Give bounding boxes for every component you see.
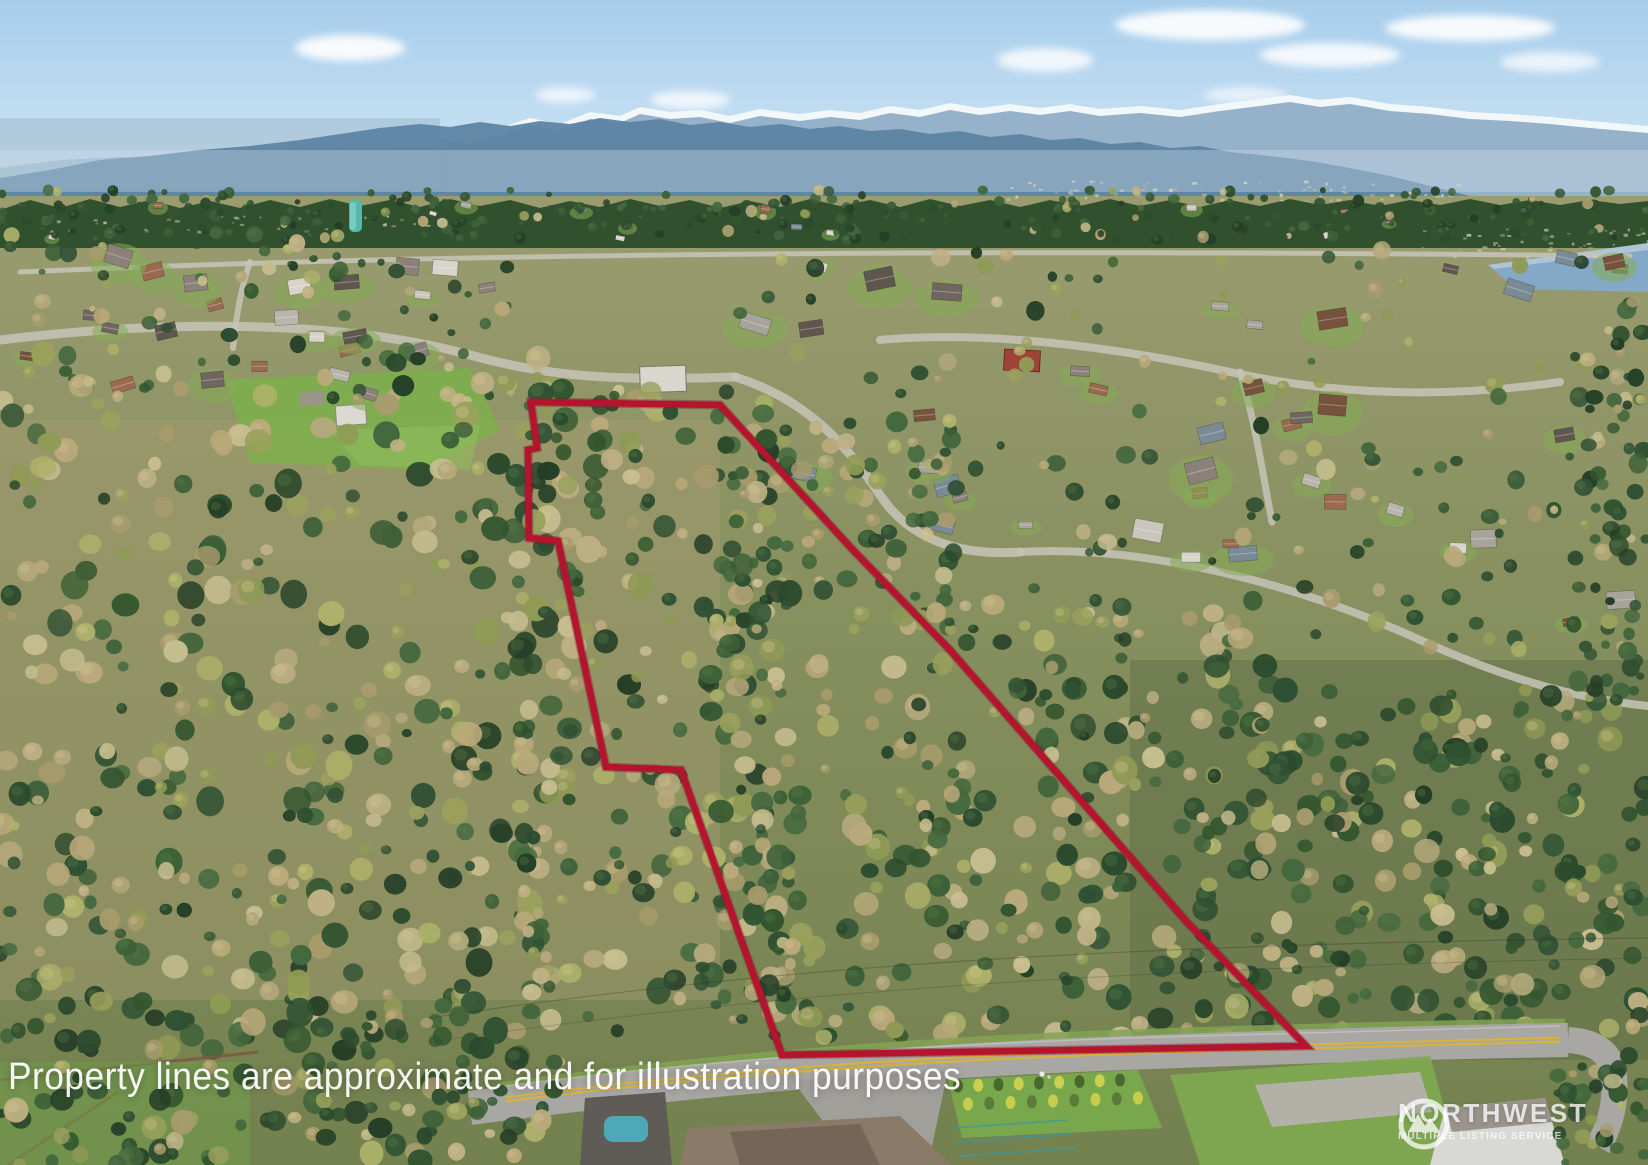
tree [241, 559, 254, 570]
tree-highlight [456, 406, 469, 418]
tree [148, 457, 161, 471]
tree [1283, 234, 1288, 239]
tree [171, 1110, 195, 1135]
tree [1314, 716, 1326, 727]
tree-highlight [639, 216, 642, 219]
tree [550, 746, 573, 765]
tree-highlight [935, 376, 939, 380]
tree-highlight [1109, 988, 1122, 1000]
tree-highlight [57, 1032, 69, 1043]
tree [1380, 708, 1396, 722]
tree [162, 955, 189, 979]
tree [1596, 479, 1608, 490]
tree-highlight [1284, 742, 1294, 751]
tree [366, 814, 382, 827]
tree [1311, 773, 1323, 786]
tree-highlight [1448, 222, 1452, 226]
tree [385, 1019, 407, 1040]
tree [1055, 917, 1071, 934]
speckle [1371, 184, 1375, 186]
tree-highlight [1570, 935, 1578, 942]
tree [558, 207, 566, 215]
tree [778, 447, 797, 464]
speckle [1070, 190, 1072, 192]
tree-highlight [673, 848, 684, 858]
tree [156, 365, 172, 382]
tree [1584, 648, 1597, 660]
tree [158, 862, 174, 880]
tree-highlight [635, 885, 646, 895]
tree [520, 700, 538, 719]
tree-highlight [1605, 522, 1614, 530]
tree-highlight [149, 190, 153, 193]
tree-highlight [1094, 275, 1099, 279]
speckle [391, 225, 396, 227]
tree-highlight [334, 992, 348, 1004]
tree-highlight [1581, 521, 1586, 526]
tree [137, 757, 161, 777]
tree-highlight [1086, 764, 1099, 775]
tree-highlight [597, 633, 609, 644]
tree-highlight [231, 1026, 243, 1037]
tree-highlight [52, 232, 56, 236]
tree [1401, 819, 1422, 837]
tree-highlight [1021, 226, 1024, 229]
tree-highlight [1209, 771, 1216, 777]
tree [1251, 860, 1269, 879]
tree [1115, 653, 1127, 664]
tree-highlight [897, 390, 903, 395]
tree-highlight [248, 229, 256, 237]
tree [785, 958, 796, 970]
tree-highlight [1153, 236, 1159, 241]
tree [295, 199, 301, 204]
tree [177, 581, 204, 609]
tree [469, 1106, 485, 1120]
tree [1446, 742, 1471, 766]
tree [937, 512, 956, 527]
tree [735, 466, 749, 479]
tree-highlight [362, 1130, 368, 1135]
tree [1504, 994, 1519, 1007]
tree [1247, 749, 1269, 768]
tree-highlight [19, 203, 22, 206]
tree [640, 646, 652, 656]
tree [327, 788, 343, 803]
tree [312, 218, 322, 226]
tree [845, 794, 867, 815]
tree [1181, 611, 1197, 626]
tree [435, 998, 452, 1014]
speckle [1572, 243, 1575, 246]
tree [1566, 233, 1573, 239]
tree-highlight [1140, 357, 1146, 362]
tree [1542, 769, 1553, 778]
tree [1031, 220, 1041, 231]
tree [127, 195, 137, 204]
tree-highlight [914, 486, 922, 493]
tree-highlight [342, 884, 348, 890]
tree [509, 551, 531, 569]
tree [1104, 722, 1128, 744]
speckle [1280, 200, 1284, 202]
tree [221, 328, 238, 342]
tree [393, 908, 411, 924]
shrub [1069, 1094, 1079, 1107]
tree [1, 403, 25, 427]
tree-highlight [1265, 222, 1271, 227]
tree [1330, 756, 1346, 773]
tree [1053, 826, 1066, 840]
tree [34, 947, 45, 957]
tree [46, 862, 69, 885]
tree-highlight [299, 866, 307, 873]
tree-highlight [592, 507, 600, 514]
tree [638, 537, 654, 552]
shrub [1054, 1076, 1064, 1089]
tree [865, 716, 879, 731]
tree-highlight [1611, 539, 1621, 548]
tree [1061, 975, 1073, 985]
tree [558, 476, 578, 495]
tree-highlight [453, 220, 458, 225]
tree-highlight [842, 791, 847, 796]
tree [245, 205, 251, 210]
tree [214, 435, 232, 455]
tree [572, 577, 582, 586]
tree [1045, 704, 1064, 720]
tree [666, 857, 678, 869]
tree-highlight [1168, 753, 1177, 761]
tree [1250, 809, 1275, 831]
tree-highlight [496, 665, 504, 672]
tree [1052, 214, 1059, 221]
tree-highlight [78, 204, 83, 208]
tree-highlight [231, 427, 243, 438]
tree-highlight [785, 940, 794, 948]
tree-highlight [1491, 804, 1499, 811]
tree-highlight [289, 1113, 296, 1119]
tree [1292, 985, 1313, 1007]
speckle [1628, 229, 1630, 232]
tree [165, 746, 189, 771]
tree [9, 480, 20, 490]
tree [1007, 369, 1022, 382]
tree-highlight [404, 1105, 411, 1111]
tree [854, 892, 879, 916]
tree-highlight [1467, 960, 1478, 970]
tree [470, 566, 496, 589]
tree [340, 1027, 356, 1040]
tree-highlight [1576, 257, 1583, 264]
tree-highlight [596, 872, 605, 880]
tree-highlight [1085, 822, 1095, 831]
tree-highlight [731, 842, 738, 848]
tree-highlight [1448, 691, 1453, 696]
tree [1235, 528, 1252, 546]
tree [106, 640, 122, 655]
tree-highlight [443, 434, 452, 442]
tree-highlight [324, 735, 330, 740]
tree-highlight [168, 1135, 177, 1143]
tree-highlight [1505, 776, 1514, 784]
tree [1526, 218, 1534, 226]
tree [409, 806, 425, 820]
speckle [1006, 198, 1010, 201]
tree [265, 494, 282, 512]
tree-highlight [469, 758, 477, 765]
tree-highlight [117, 490, 125, 497]
pedestrian-dog [1047, 1075, 1050, 1078]
tree [1629, 453, 1648, 473]
tree [966, 919, 988, 941]
tree [406, 462, 434, 487]
tree-highlight [1051, 285, 1057, 291]
tree [1519, 684, 1532, 696]
tree-highlight [390, 195, 394, 198]
tree [90, 992, 113, 1011]
tree-highlight [1091, 596, 1097, 602]
tree [321, 923, 348, 948]
tree-highlight [949, 926, 958, 934]
tree [427, 850, 440, 863]
tree [8, 856, 21, 869]
tree-highlight [346, 507, 354, 514]
tree-highlight [615, 861, 620, 866]
tree [1350, 487, 1365, 500]
speckle [1636, 234, 1640, 236]
tree [694, 465, 719, 489]
tree-highlight [1254, 1014, 1265, 1024]
tree-highlight [614, 386, 620, 391]
tree [519, 211, 529, 221]
tree [43, 185, 54, 196]
tree-highlight [900, 212, 903, 214]
tree [1298, 221, 1309, 231]
tree [136, 202, 142, 207]
tree-highlight [101, 745, 109, 752]
tree [1149, 776, 1161, 787]
tree-highlight [760, 214, 764, 217]
tree [722, 959, 736, 974]
tree [79, 535, 102, 555]
tree [1128, 721, 1145, 739]
tree-highlight [281, 217, 287, 222]
speckle [325, 228, 328, 230]
tree-highlight [1618, 1102, 1622, 1106]
speckle [1303, 189, 1306, 191]
tree-highlight [392, 627, 399, 633]
tree [1469, 617, 1484, 630]
tree [1001, 904, 1017, 917]
tree [664, 614, 676, 625]
tree [1626, 297, 1639, 308]
tree [481, 516, 509, 541]
tree-highlight [456, 661, 464, 668]
tree [235, 1119, 246, 1131]
tree-highlight [933, 820, 943, 829]
tree [30, 456, 56, 478]
tree [390, 439, 406, 451]
speckle [1305, 200, 1309, 202]
tree [456, 235, 464, 242]
tree-highlight [1105, 854, 1118, 866]
tree-highlight [473, 464, 479, 470]
shrub [973, 1079, 983, 1092]
tree-highlight [1256, 705, 1266, 714]
tree [1569, 1070, 1578, 1077]
tree [345, 734, 369, 754]
tree [336, 424, 358, 446]
tree-highlight [1411, 194, 1414, 197]
tree-highlight [459, 218, 463, 222]
tree [911, 698, 926, 712]
tree-highlight [1560, 797, 1571, 807]
tree [145, 1010, 165, 1027]
tree [92, 236, 97, 240]
tree [512, 799, 529, 813]
speckle [1521, 241, 1524, 243]
tree [1431, 186, 1440, 195]
tree [608, 236, 614, 241]
tree-highlight [1362, 805, 1374, 816]
tree [1159, 981, 1175, 994]
tree [1222, 710, 1239, 727]
tree [929, 206, 937, 213]
tree [726, 678, 749, 697]
tree-highlight [1169, 195, 1175, 200]
tree [1596, 202, 1601, 206]
speckle [1623, 234, 1627, 237]
tree [1335, 967, 1346, 976]
tree-highlight [553, 381, 565, 392]
tree [886, 1022, 904, 1039]
tree [1417, 989, 1439, 1012]
tree-highlight [1245, 215, 1251, 220]
tree [283, 810, 296, 822]
tree-highlight [1141, 714, 1146, 719]
tree-highlight [1360, 907, 1365, 912]
tree [554, 599, 568, 611]
tree-highlight [922, 530, 928, 536]
tree-highlight [1577, 480, 1587, 489]
tree [500, 1129, 517, 1145]
tree [938, 353, 956, 371]
tree [694, 534, 713, 554]
tree-highlight [1478, 220, 1481, 223]
tree-highlight [1227, 200, 1231, 203]
tree [710, 1000, 721, 1009]
shrub [1115, 1074, 1125, 1087]
tree [1511, 641, 1527, 657]
tree-highlight [1438, 222, 1442, 226]
tree [1430, 876, 1449, 895]
tree-highlight [1587, 934, 1592, 939]
tree-highlight [1133, 1018, 1142, 1026]
tree [1213, 216, 1218, 221]
tree [681, 651, 697, 668]
tree [1082, 885, 1103, 903]
tree [1627, 369, 1644, 387]
tree-highlight [498, 375, 508, 384]
tree [154, 307, 166, 320]
tree [1518, 832, 1532, 844]
tree [1306, 440, 1322, 456]
tree-highlight [382, 846, 387, 851]
tree [465, 861, 475, 871]
tree-highlight [587, 479, 596, 487]
tree-highlight [808, 262, 817, 270]
tree-highlight [1021, 863, 1027, 868]
tree-highlight [1427, 208, 1430, 210]
tree [532, 372, 543, 381]
tree [781, 754, 795, 767]
speckle [1424, 194, 1428, 196]
tree [1320, 187, 1326, 193]
tree [814, 580, 833, 600]
speckle [1493, 244, 1495, 246]
tree-highlight [531, 385, 544, 397]
tree-highlight [1543, 688, 1554, 698]
tree [1004, 220, 1011, 228]
tree [1246, 789, 1267, 808]
tree-highlight [658, 695, 663, 700]
tree-highlight [1054, 208, 1057, 210]
tree-highlight [201, 871, 212, 881]
tree-highlight [702, 666, 714, 677]
speckle [240, 224, 244, 226]
tree [1424, 894, 1438, 906]
tree-highlight [946, 618, 951, 623]
tree [245, 429, 272, 454]
tree-highlight [116, 930, 122, 935]
tree [1046, 455, 1066, 471]
tree-highlight [1001, 250, 1008, 256]
tree [1590, 186, 1601, 197]
tree [1203, 604, 1224, 622]
tree [611, 728, 622, 740]
speckle [57, 220, 61, 223]
tree-highlight [401, 931, 414, 943]
tree [286, 998, 313, 1027]
tree [440, 199, 450, 209]
tree [1056, 844, 1078, 866]
tree [762, 767, 781, 786]
speckle [1478, 250, 1482, 252]
speckle [277, 228, 280, 230]
tree [557, 668, 571, 680]
tree [1117, 538, 1127, 548]
tree [934, 943, 952, 959]
tree-highlight [1406, 946, 1416, 955]
tree-highlight [573, 587, 579, 593]
tree [100, 767, 125, 788]
tree [1511, 973, 1535, 996]
tree-highlight [1406, 794, 1415, 802]
tree-highlight [387, 1011, 396, 1019]
tree [668, 220, 673, 225]
tree-highlight [367, 715, 381, 727]
tree [45, 218, 53, 225]
tree-highlight [145, 1119, 158, 1130]
tree [940, 448, 951, 457]
tree [479, 761, 491, 772]
tree [137, 779, 157, 796]
tree [746, 205, 758, 218]
tree-highlight [1361, 990, 1367, 995]
tree [920, 818, 932, 832]
tree [849, 822, 873, 845]
